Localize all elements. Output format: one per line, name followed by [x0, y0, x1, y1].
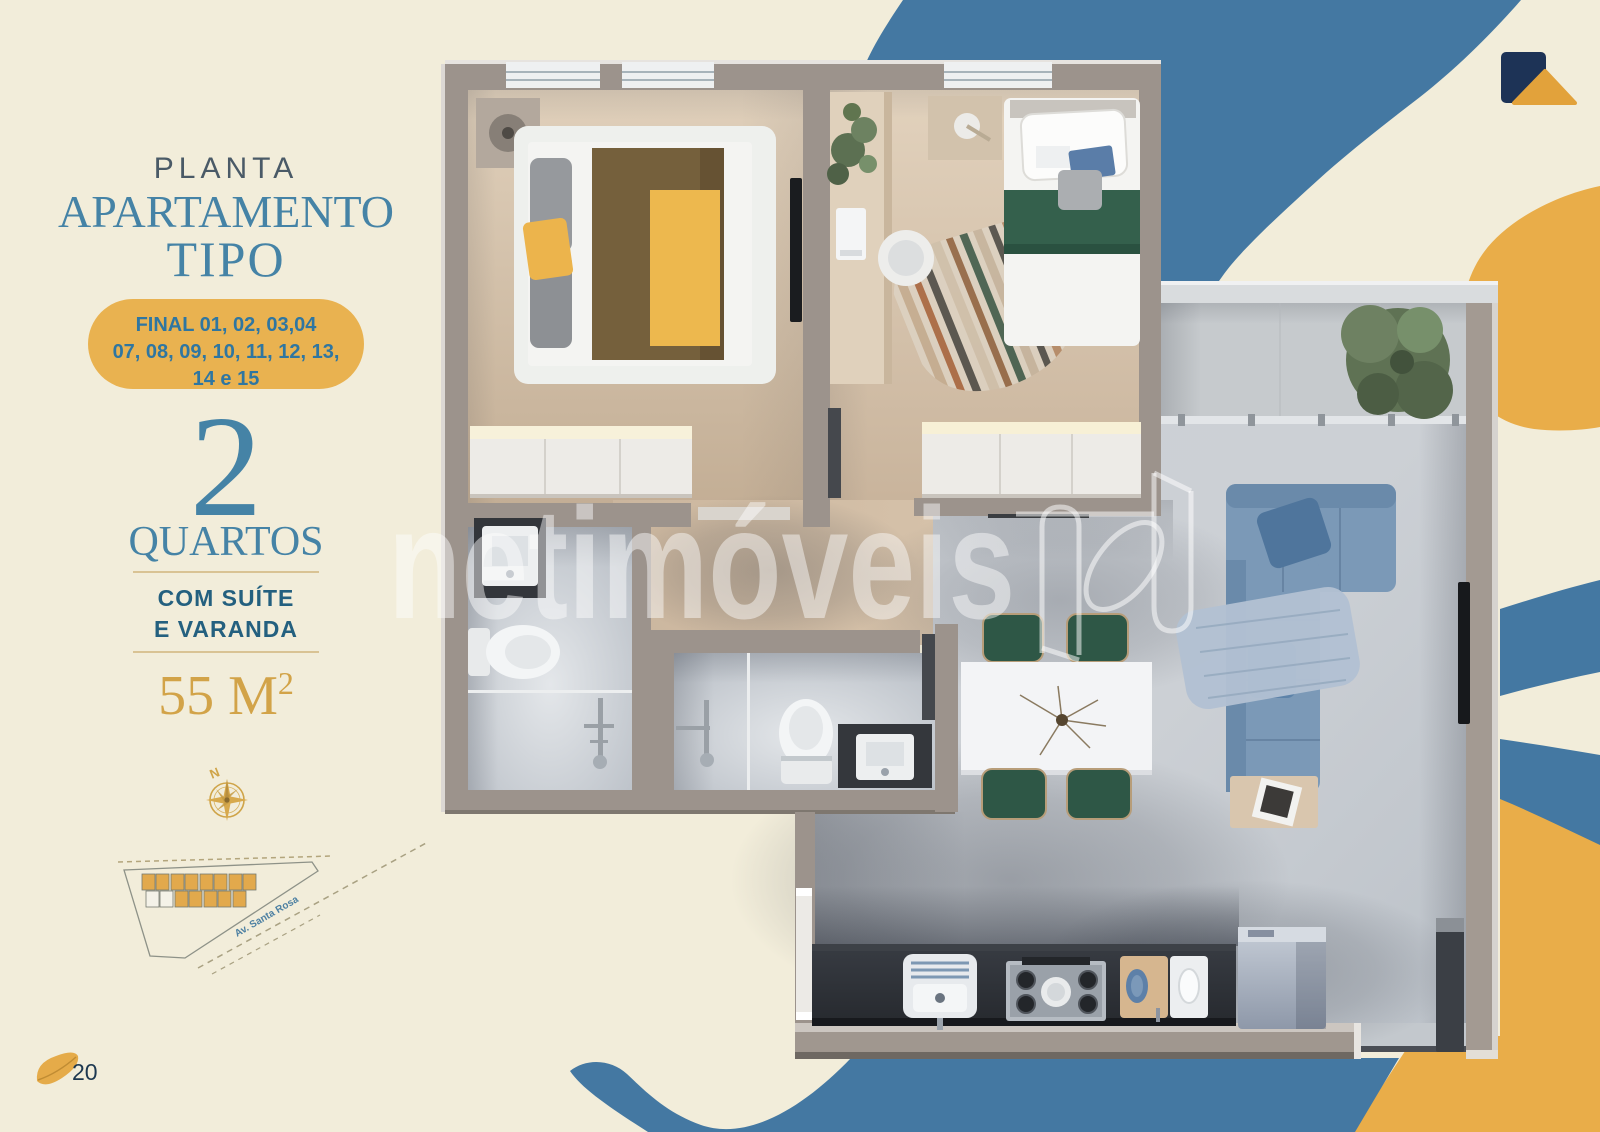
svg-text:07, 08, 09, 10, 11, 12, 13,: 07, 08, 09, 10, 11, 12, 13,: [113, 341, 340, 363]
svg-text:20: 20: [72, 1059, 98, 1085]
svg-text:PLANTA: PLANTA: [154, 152, 298, 185]
svg-text:COM SUÍTE: COM SUÍTE: [158, 584, 295, 611]
svg-text:E VARANDA: E VARANDA: [154, 616, 298, 642]
svg-text:FINAL 01, 02, 03,04: FINAL 01, 02, 03,04: [136, 314, 318, 336]
svg-text:APARTAMENTO: APARTAMENTO: [58, 186, 394, 237]
svg-text:netimóveis: netimóveis: [388, 475, 1015, 652]
svg-text:TIPO: TIPO: [166, 231, 285, 287]
svg-text:55 M2: 55 M2: [158, 665, 294, 727]
svg-text:QUARTOS: QUARTOS: [128, 519, 323, 565]
